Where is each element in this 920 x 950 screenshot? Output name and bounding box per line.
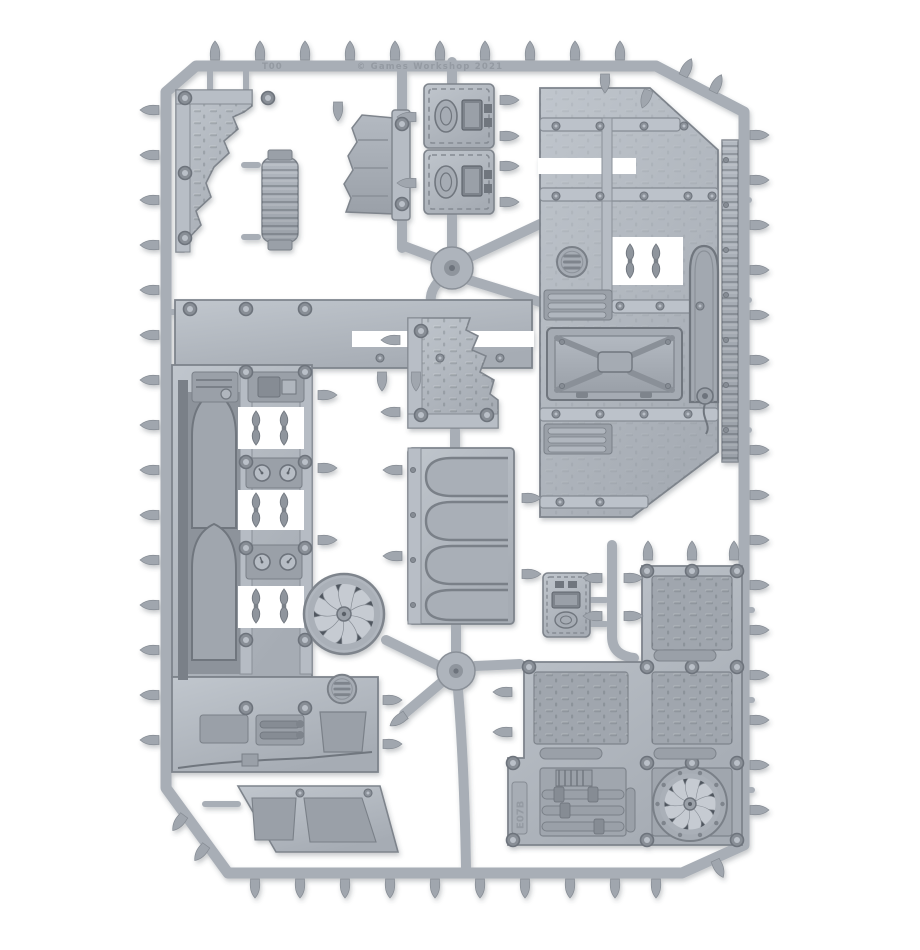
mini-console-piece	[543, 573, 590, 637]
moulded-code-plaque: E07B	[512, 782, 527, 834]
rivet	[507, 834, 520, 847]
rivet	[731, 661, 744, 674]
ladder-rail-piece	[722, 140, 738, 462]
bolt	[640, 410, 648, 418]
rivet	[299, 366, 312, 379]
small-bolt	[723, 427, 728, 432]
right-wall-section	[538, 88, 718, 517]
runner-hub-1	[431, 247, 473, 289]
small-bolt	[665, 339, 670, 344]
rivet	[179, 167, 192, 180]
small-bolt	[723, 337, 728, 342]
bolt	[684, 192, 692, 200]
rivet	[731, 834, 744, 847]
rivet	[686, 565, 699, 578]
bolt	[708, 192, 716, 200]
floor-rail-slot	[654, 748, 716, 759]
bolt	[436, 354, 444, 362]
small-bolt	[723, 202, 728, 207]
gothic-arch-panel	[408, 448, 514, 624]
bolt	[656, 302, 664, 310]
rivet	[240, 456, 253, 469]
rivet	[299, 702, 312, 715]
fan-flange-bolt	[698, 771, 702, 775]
wall-slot	[538, 158, 636, 174]
rivet	[641, 757, 654, 770]
panel-code-text: E07B	[516, 801, 527, 829]
rivet	[179, 92, 192, 105]
rivet	[396, 198, 409, 211]
bolt	[296, 789, 304, 797]
rivet	[240, 542, 253, 555]
small-bolt	[723, 382, 728, 387]
control-console-piece-1	[424, 84, 494, 148]
bolt	[684, 410, 692, 418]
small-bolt	[410, 512, 415, 517]
bolt	[552, 410, 560, 418]
rivet	[262, 92, 275, 105]
rivet	[731, 757, 744, 770]
bolt	[552, 122, 560, 130]
wall-window	[610, 237, 683, 285]
rivet	[240, 702, 253, 715]
fan-flange-bolt	[714, 783, 718, 787]
small-bolt	[559, 339, 564, 344]
fan-flange-bolt	[655, 802, 659, 806]
rivet	[507, 757, 520, 770]
bolt	[680, 122, 688, 130]
bolt	[596, 410, 604, 418]
small-bolt	[410, 557, 415, 562]
rivet	[240, 366, 253, 379]
fan-flange-bolt	[714, 821, 718, 825]
small-bolt	[559, 383, 564, 388]
fan-flange-bolt	[662, 783, 666, 787]
bolt	[640, 192, 648, 200]
bolt	[596, 122, 604, 130]
bolt	[364, 789, 372, 797]
small-bolt	[723, 292, 728, 297]
rivet	[686, 661, 699, 674]
industrial-fan-1	[304, 574, 384, 654]
rivet	[641, 661, 654, 674]
small-bolt	[723, 247, 728, 252]
bolt	[496, 354, 504, 362]
rivet	[299, 634, 312, 647]
support-pillar-piece	[262, 150, 298, 250]
sprue-photo: E07B T00 © Games Workshop 2021	[0, 0, 920, 950]
rivet	[415, 325, 428, 338]
runner-code-text: T00	[262, 62, 283, 72]
rivet	[184, 303, 197, 316]
access-hatch-door	[547, 328, 682, 400]
bolt	[596, 498, 604, 506]
small-bolt	[410, 467, 415, 472]
floor-rail-slot	[540, 748, 602, 759]
bolt	[552, 192, 560, 200]
small-bolt	[723, 157, 728, 162]
bolt	[696, 302, 704, 310]
bolt	[376, 354, 384, 362]
rivet	[179, 232, 192, 245]
rivet	[415, 409, 428, 422]
floor-rail-slot	[654, 650, 716, 661]
bolt	[556, 498, 564, 506]
rivet	[299, 303, 312, 316]
bolt	[640, 122, 648, 130]
control-console-piece-2	[424, 150, 494, 214]
rivet	[641, 565, 654, 578]
small-bolt	[665, 383, 670, 388]
rivet	[240, 634, 253, 647]
fan-flange-bolt	[720, 802, 724, 806]
rivet	[523, 661, 536, 674]
rivet	[731, 565, 744, 578]
copyright-text: © Games Workshop 2021	[357, 62, 503, 72]
product-photo: E07B T00 © Games Workshop 2021	[0, 0, 920, 950]
bolt	[616, 302, 624, 310]
fan-flange-bolt	[662, 821, 666, 825]
fan-flange-bolt	[698, 833, 702, 837]
small-bolt	[410, 602, 415, 607]
vent-grille	[328, 675, 357, 704]
industrial-fan-2	[653, 767, 727, 841]
rivet	[299, 456, 312, 469]
vent-grille	[557, 247, 587, 277]
rivet	[641, 834, 654, 847]
rivet	[299, 542, 312, 555]
bolt	[596, 192, 604, 200]
rivet	[240, 303, 253, 316]
rivet	[481, 409, 494, 422]
runner-hub-2	[437, 652, 475, 690]
rivet	[396, 118, 409, 131]
fan-flange-bolt	[678, 771, 682, 775]
fan-flange-bolt	[678, 833, 682, 837]
